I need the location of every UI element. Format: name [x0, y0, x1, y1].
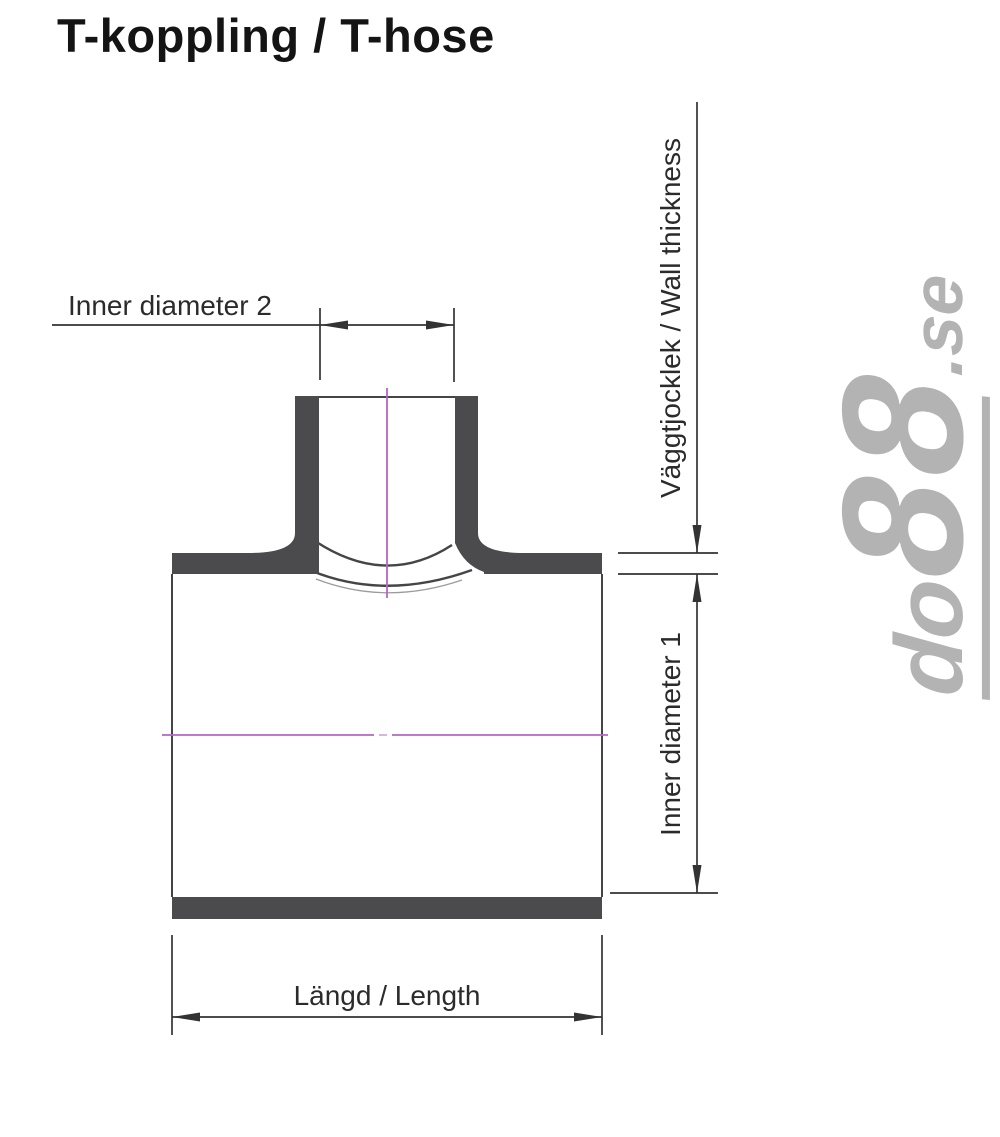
pipe-bottom-wall — [172, 897, 602, 919]
length-arrow-right — [574, 1013, 602, 1022]
branch-left-wall — [172, 396, 319, 574]
label-inner-diameter-2: Inner diameter 2 — [68, 290, 272, 322]
watermark-do88-logo: do 88 .se — [830, 272, 976, 693]
saddle-arc-lower — [312, 570, 472, 586]
saddle-arc-upper — [315, 541, 452, 566]
id2-arrow-left — [320, 321, 348, 330]
length-arrow-left — [172, 1013, 200, 1022]
watermark-brand-do: do — [889, 578, 971, 698]
wall-thickness-arrow-down — [693, 525, 702, 553]
label-inner-diameter-1: Inner diameter 1 — [655, 632, 687, 836]
watermark-text: do 88 .se — [830, 265, 976, 698]
id2-arrow-right — [426, 321, 454, 330]
page-title: T-koppling / T-hose — [57, 8, 495, 63]
label-wall-thickness: Väggtjocklek / Wall thickness — [655, 138, 687, 498]
id1-arrow-down — [693, 865, 702, 893]
label-length: Längd / Length — [294, 980, 481, 1012]
watermark-tld: .se — [908, 272, 969, 377]
branch-right-wall — [455, 396, 602, 574]
diagram-page: T-koppling / T-hose Inner diameter 2 Väg… — [0, 0, 1000, 1137]
id1-arrow-up — [693, 574, 702, 602]
watermark-underline — [982, 396, 990, 700]
dimension-lines — [52, 102, 718, 1035]
watermark-brand-88: 88 — [830, 365, 976, 585]
